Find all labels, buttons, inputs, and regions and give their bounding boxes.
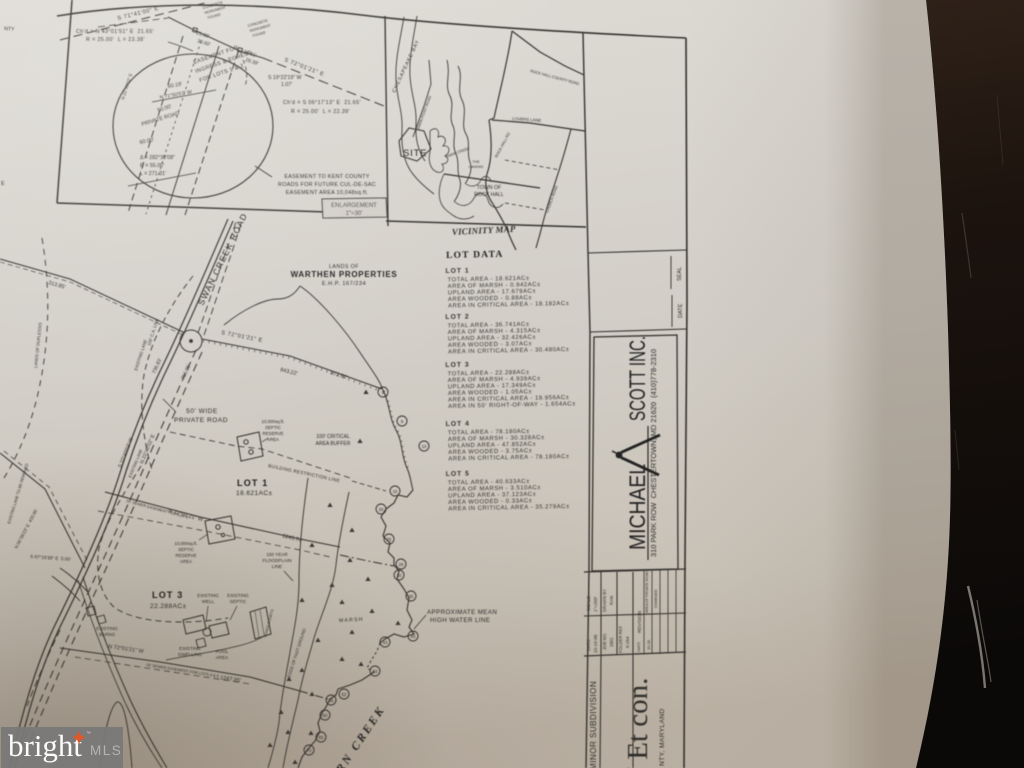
svg-text:bright: bright bbox=[8, 728, 82, 763]
svg-text:™: ™ bbox=[86, 731, 91, 737]
svg-text:MLS: MLS bbox=[90, 743, 122, 758]
